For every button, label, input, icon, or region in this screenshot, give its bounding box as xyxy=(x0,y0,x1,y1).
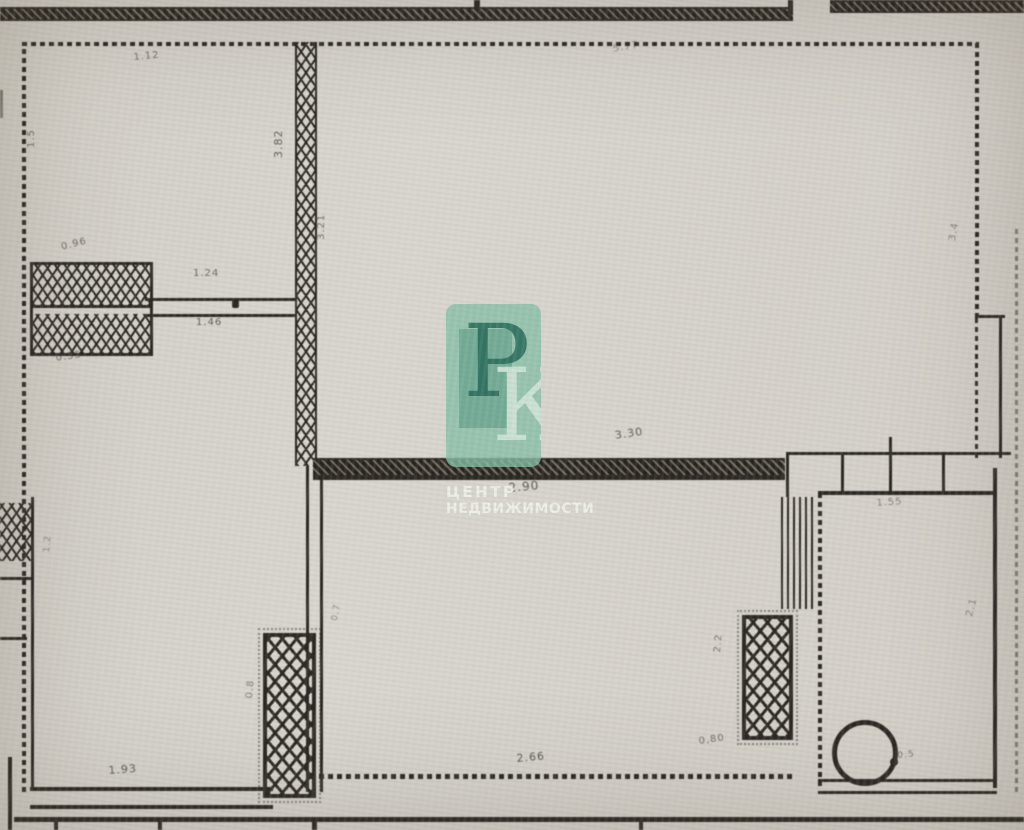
watermark-caption-line1: ЦЕНТР xyxy=(446,483,516,501)
floor-plan-scan: 4.041.121.53.823.215.773.40.961.241.460.… xyxy=(0,0,1024,830)
watermark: Р К ЦЕНТР НЕДВИЖИМОСТИ xyxy=(0,0,1024,830)
watermark-caption-line2: НЕДВИЖИМОСТИ xyxy=(446,501,594,517)
watermark-logo-box: Р К xyxy=(446,304,541,467)
watermark-letter-k: К xyxy=(492,356,541,456)
